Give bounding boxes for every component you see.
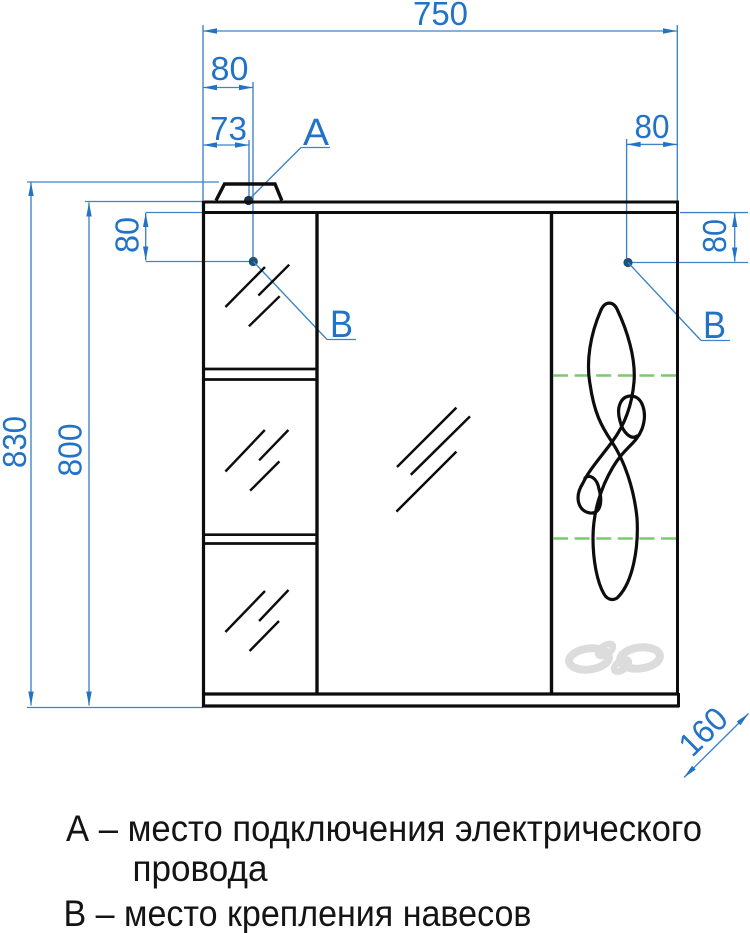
svg-text:80: 80 [211, 50, 249, 87]
svg-text:провода: провода [133, 848, 268, 889]
svg-text:750: 750 [413, 0, 468, 32]
svg-text:80: 80 [696, 219, 733, 253]
svg-text:80: 80 [635, 108, 670, 145]
svg-text:В – место крепления навесов: В – место крепления навесов [64, 893, 532, 933]
svg-text:А – место подключения электрич: А – место подключения электрического [66, 808, 702, 849]
svg-text:830: 830 [0, 416, 33, 468]
svg-text:73: 73 [210, 110, 247, 147]
svg-text:800: 800 [52, 424, 89, 477]
svg-text:80: 80 [109, 217, 146, 253]
